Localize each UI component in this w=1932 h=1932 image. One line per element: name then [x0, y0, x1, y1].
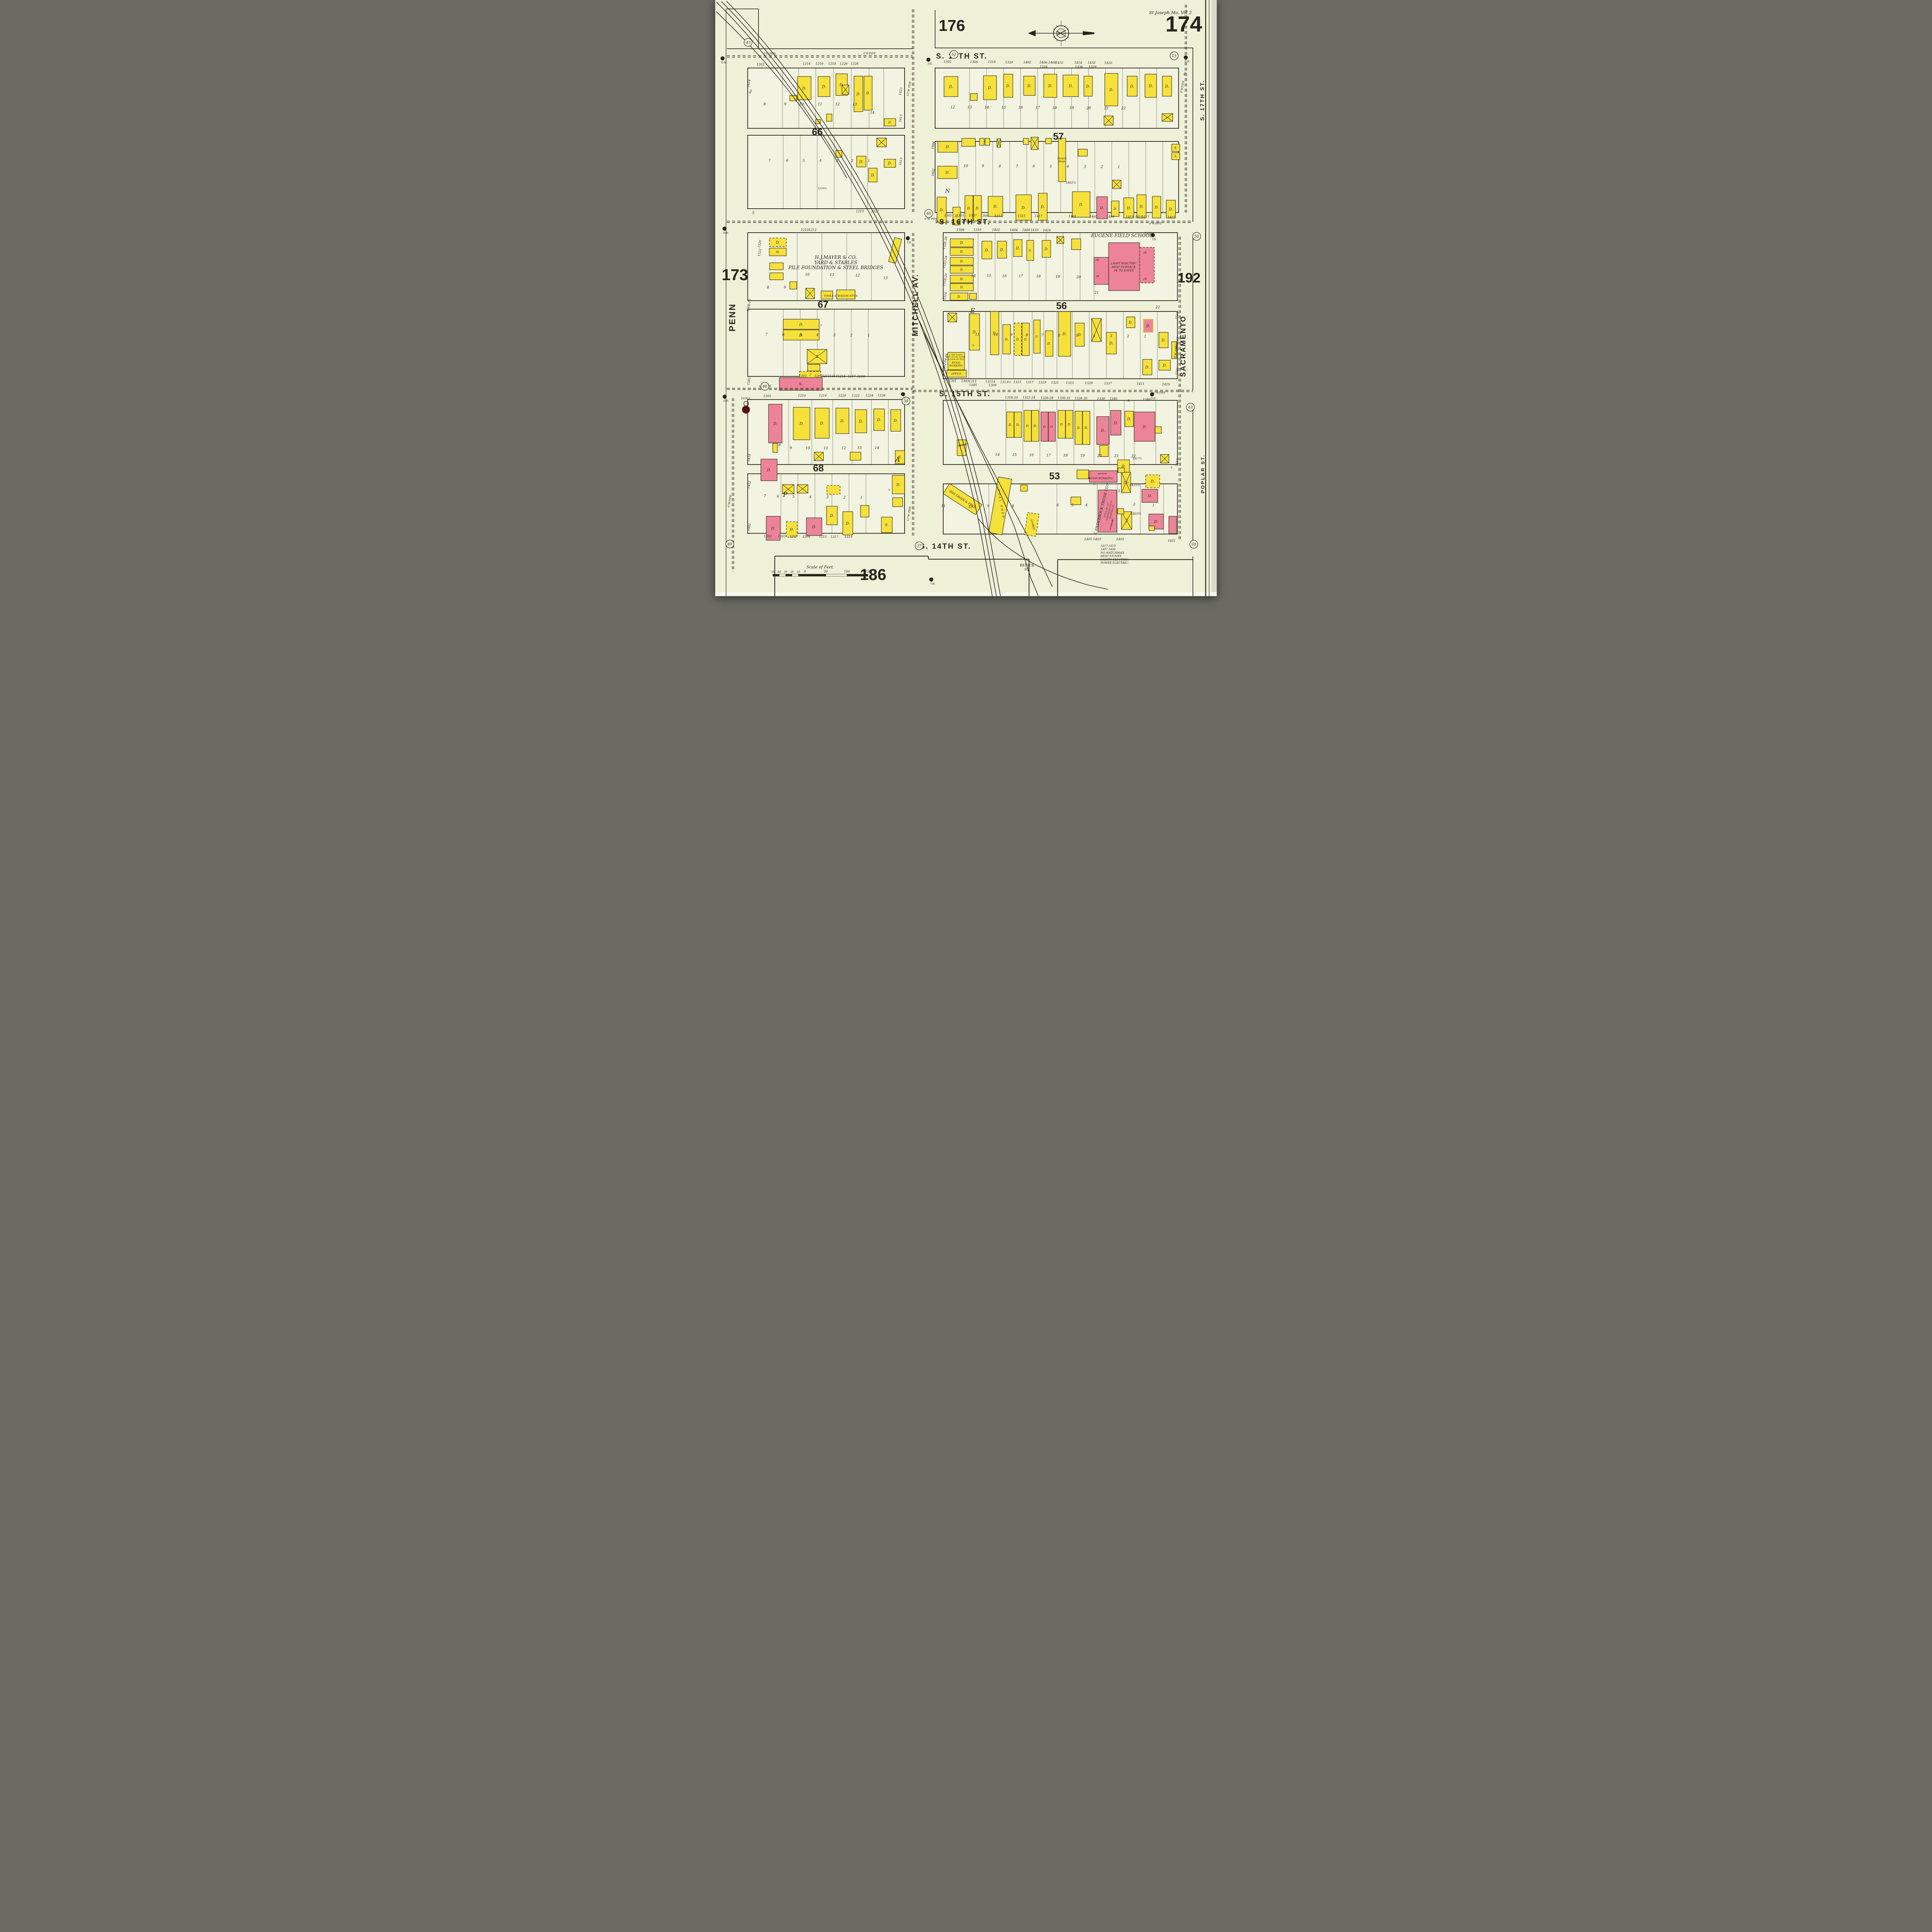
- building-use-label: D.: [1026, 424, 1029, 428]
- circled-number-value: 52: [952, 53, 956, 57]
- building: D.: [1111, 410, 1121, 435]
- lot-number: 17: [1019, 274, 1023, 278]
- building: D.: [938, 166, 957, 179]
- lot-number: 12: [835, 102, 840, 106]
- building-use-label: D.: [1139, 204, 1143, 209]
- address-label: 1219: [844, 535, 852, 539]
- building-use-label: D.: [960, 250, 964, 253]
- building-footprint: [770, 273, 783, 280]
- building: [980, 138, 984, 145]
- lot-number: 18: [1053, 106, 1057, 110]
- map-note: POWER ELECTRIC:: [1100, 561, 1129, 565]
- building-use-label: D.: [985, 248, 989, 252]
- map-note: HEAT STOVES: [1100, 554, 1121, 558]
- building-use-label: 2: [815, 355, 818, 359]
- address-label: 1346: [1143, 398, 1150, 401]
- address-label: 1302: [944, 60, 951, 63]
- lot-number: 12: [855, 273, 860, 277]
- street-edge-line: [928, 556, 929, 559]
- map-note: S.: [1171, 466, 1173, 469]
- address-label: 1212: [808, 228, 816, 232]
- building: [806, 288, 815, 299]
- hydrant-dot-icon: [926, 58, 930, 61]
- building: [797, 485, 808, 493]
- building-use-label: D.: [877, 418, 881, 422]
- address-label: 1210: [798, 394, 806, 398]
- lot-number: 17: [1036, 106, 1040, 110]
- building: D.: [950, 239, 973, 247]
- lot-number: 4: [1093, 334, 1095, 338]
- building: [842, 85, 849, 94]
- building: D.: [1003, 74, 1013, 97]
- building-use-label: D.: [959, 241, 964, 245]
- sanborn-fire-insurance-map: D.D.D.D.D.D.D.D.D.D.D.D.D.D.D.D.D.D.D.D.…: [715, 0, 1217, 596]
- map-note: Carp'tr: [1057, 157, 1067, 160]
- lot-number: 20: [1097, 454, 1102, 458]
- building: [1046, 138, 1051, 144]
- scale-bar-segment: [847, 574, 868, 577]
- building: [1160, 454, 1169, 463]
- lot-number: 1: [1118, 165, 1120, 169]
- building-use-label: D.: [1084, 426, 1088, 430]
- building: D.: [1072, 192, 1090, 217]
- building: D.: [982, 241, 992, 259]
- map-note: WORKING: [949, 364, 963, 367]
- map-note: 34' TO EAVES: [1114, 269, 1134, 272]
- lot-number: 20: [1076, 275, 1081, 279]
- building-use-label: D.: [1154, 205, 1158, 209]
- building-use-label: D.: [1142, 425, 1146, 429]
- building: D.: [1097, 197, 1107, 219]
- address-label: 1311A: [985, 380, 995, 384]
- building-use-label: D.: [776, 240, 780, 245]
- lot-number: 3: [833, 333, 836, 337]
- page-edge-shading: [1211, 0, 1217, 596]
- map-note: 1216½: [818, 187, 827, 190]
- address-label: 1207: [814, 374, 822, 378]
- building: D.: [1003, 325, 1010, 354]
- circled-number-value: 50: [1194, 235, 1199, 239]
- building-use-label: D.: [1126, 206, 1131, 210]
- building-use-label: D.: [1008, 423, 1012, 427]
- lot-number: 8: [778, 443, 781, 447]
- building-footprint: [969, 293, 976, 299]
- address-label: 1408: [1022, 228, 1030, 232]
- map-note: YARD & STABLES: [815, 260, 857, 265]
- building-use-label: D.: [1048, 84, 1052, 88]
- lot-number: 20: [1086, 106, 1091, 110]
- fire-alarm-label: F.A.: [743, 409, 748, 411]
- building: D.: [1162, 76, 1172, 96]
- lot-number: 6: [1057, 503, 1059, 508]
- building: D.: [1124, 198, 1134, 218]
- building-use-label: D.: [1150, 480, 1155, 484]
- address-label: 1404: [1010, 228, 1017, 232]
- address-label: 1421: [1167, 216, 1175, 219]
- lot-number: 8: [999, 164, 1001, 168]
- building: [1117, 509, 1124, 514]
- address-label: 1418: [1088, 61, 1095, 65]
- lot-number: 4: [816, 333, 819, 337]
- lot-number: 18: [1063, 453, 1068, 457]
- building-use-label: D.: [1154, 520, 1158, 524]
- building-footprint: [861, 505, 869, 517]
- building: 2: [807, 349, 827, 364]
- address-label: 1217: [848, 375, 856, 378]
- lot-number: 5: [793, 495, 795, 499]
- building-use-label: D.: [888, 121, 892, 124]
- lot-number: 14: [985, 105, 989, 110]
- hydrant-dot-icon: [1150, 392, 1154, 396]
- lot-number: 1: [868, 159, 870, 163]
- building-use-label: D.: [896, 483, 900, 487]
- map-note: S.: [972, 344, 975, 347]
- lot-number: 22: [1121, 106, 1126, 111]
- building-use-label: D.: [1100, 206, 1104, 210]
- building: D.: [884, 159, 896, 167]
- building-use-label: D.: [799, 322, 803, 327]
- address-label: 1307: [969, 214, 977, 217]
- map-note: 2B.: [1143, 278, 1147, 281]
- building-footprint: [1149, 526, 1155, 531]
- building-use-label: D.: [1060, 423, 1063, 426]
- building: D.: [950, 275, 973, 283]
- map-note: EUGENE FIELD SCHOOL: [1091, 233, 1153, 238]
- block-number: 67: [818, 299, 828, 310]
- lot-number: 13: [852, 102, 857, 107]
- building: D.: [1027, 240, 1034, 260]
- scale-bar-tick: 30: [784, 570, 787, 573]
- address-label: 1413: [1126, 215, 1133, 219]
- address-label: 1226: [878, 394, 885, 397]
- address-label: 1315: [1014, 381, 1021, 384]
- building-use-label: D.: [1146, 324, 1150, 328]
- address-label: 1318: [988, 60, 996, 64]
- building: D.: [793, 407, 810, 440]
- address-label: 1311: [994, 214, 1002, 218]
- lot-number: 14: [870, 111, 875, 115]
- hydrant-dot-icon: [723, 226, 726, 230]
- address-label: 1324: [1040, 65, 1048, 69]
- address-label: 1326-28: [1041, 396, 1053, 400]
- address-label: 1218: [828, 62, 836, 66]
- building-footprint: [770, 263, 783, 270]
- circled-number: 37: [915, 542, 923, 550]
- building-use-label: D.: [1043, 425, 1046, 429]
- address-label: 1410: [1031, 228, 1038, 232]
- building-footprint: [962, 138, 975, 146]
- building-use-label: D.: [1016, 423, 1020, 427]
- address-label: 1402: [992, 228, 1000, 232]
- building-use-label: D.: [1109, 88, 1113, 92]
- map-note: 2B.: [1095, 259, 1099, 262]
- building-footprint: [1078, 149, 1087, 156]
- building-use-label: D.: [1113, 421, 1117, 425]
- building-use-label: D.: [888, 162, 892, 166]
- address-label: 1420: [1104, 61, 1112, 65]
- lot-number: 11: [824, 446, 828, 451]
- building-footprint: [1023, 138, 1029, 145]
- building: [1155, 427, 1162, 433]
- building-use-label: D.: [960, 268, 964, 271]
- building: S.: [1172, 144, 1180, 151]
- map-note: Shop.: [1058, 160, 1066, 163]
- address-label: 1405: [1089, 215, 1097, 218]
- map-note: WOOD: [952, 361, 960, 364]
- building-use-label: D.: [1016, 338, 1020, 341]
- building-use-label: D.: [1027, 84, 1031, 88]
- building-use-label: D.: [1033, 424, 1037, 428]
- lot-number: 10: [806, 446, 810, 451]
- building: [1071, 239, 1081, 250]
- map-note: OFFICE: [951, 372, 962, 376]
- map-note: A.: [1093, 483, 1095, 486]
- adjacent-sheet-number: 173: [722, 266, 748, 284]
- building-use-label: D.: [789, 528, 794, 532]
- map-note: PILE FOUNDATION & STEEL BRIDGES: [788, 265, 883, 270]
- building-use-label: D.: [1079, 202, 1083, 207]
- hydrant-label: D.H.: [721, 61, 727, 64]
- scale-bar-segment: [792, 574, 799, 577]
- block-number: 66: [812, 127, 823, 138]
- circled-number: 21: [1170, 52, 1178, 60]
- building: [808, 364, 820, 371]
- map-note: MOTOR.: [1097, 473, 1107, 475]
- building-use-label: D.: [1047, 342, 1051, 345]
- volume-script-title: St Joseph Mo. Vol 2: [1149, 10, 1192, 15]
- building: D.: [1048, 412, 1055, 441]
- circled-number: 40: [726, 540, 734, 548]
- address-label: 1224: [866, 394, 873, 398]
- address-label: 1202: [763, 394, 771, 398]
- water-pipe-label: 6"W.PIPE: [764, 52, 776, 55]
- utility-marker: F.A.: [742, 406, 750, 413]
- map-note: ENG. & GAL GASOL: [946, 356, 966, 359]
- address-label: 1215: [856, 210, 864, 213]
- address-label: 1226: [840, 62, 847, 66]
- lot-number: 9: [987, 504, 990, 509]
- building: D.: [1024, 410, 1031, 441]
- building-use-label: D.: [949, 85, 953, 89]
- lot-number: 7: [768, 158, 770, 163]
- lot-number: 6: [1033, 164, 1035, 168]
- lot-number: 9: [784, 286, 786, 290]
- building-use-label: D.: [960, 259, 964, 263]
- lot-number: 10: [799, 102, 804, 106]
- page-bottom-edge: [715, 592, 1217, 596]
- building: D.: [869, 168, 877, 182]
- building-footprint: [1118, 468, 1124, 473]
- building: D.: [950, 248, 973, 255]
- building-use-label: D.: [993, 204, 997, 209]
- map-note: 1417½: [1133, 457, 1142, 460]
- hydrant-label: T.H.: [927, 63, 932, 66]
- building-footprint: [773, 443, 777, 452]
- building-footprint: [893, 498, 903, 507]
- building-use-label: 1: [1023, 487, 1025, 490]
- lot-number: 7: [1041, 333, 1044, 338]
- circled-number: 52: [950, 51, 958, 59]
- building-footprint: [790, 282, 797, 289]
- building: 2: [1121, 512, 1132, 529]
- scale-bar-segment: [786, 574, 792, 577]
- scale-bar-segment: [773, 574, 779, 577]
- building-use-label: D.: [859, 160, 863, 164]
- water-pipe-label: 6"W.PIPE: [1149, 222, 1162, 225]
- address-label: 1337: [1104, 382, 1112, 385]
- hydrant-dot-icon: [901, 392, 905, 396]
- building: D.: [950, 284, 973, 291]
- street-name-label: S. 15TH ST.: [939, 390, 990, 398]
- lot-number: 7: [764, 494, 766, 498]
- map-note: TOOLS & WAGON ST'GE.: [824, 294, 859, 298]
- water-pipe-label: 6"W.PIPE: [863, 52, 876, 55]
- building-use-label: D.: [1113, 207, 1117, 211]
- map-note: 1411½: [1129, 483, 1140, 487]
- lot-number: 2: [1133, 502, 1136, 507]
- map-note: LIGHTS ELECTRIC:: [1100, 558, 1129, 561]
- building-footprint: [1077, 470, 1088, 479]
- building-use-label: D.: [1040, 205, 1044, 209]
- address-label: 1217: [830, 535, 838, 539]
- building-use-label: D.: [821, 85, 826, 89]
- building: S.: [881, 517, 892, 532]
- lot-number: 14: [875, 446, 879, 450]
- address-label: 1214: [819, 394, 827, 398]
- building: D.: [1063, 75, 1078, 97]
- building: D.: [769, 404, 782, 443]
- address-label: 1321: [1051, 381, 1059, 384]
- address-label: 1227: [871, 210, 879, 213]
- lot-number: 13: [968, 105, 972, 109]
- building-footprint: [827, 485, 840, 494]
- building: [1023, 138, 1029, 145]
- lot-number: 16: [1002, 274, 1007, 278]
- building: D.: [950, 293, 968, 300]
- address-label: 1219: [857, 375, 865, 378]
- building-use-label: D.: [1147, 494, 1151, 498]
- building: D.: [761, 459, 777, 481]
- building: D.: [783, 319, 819, 329]
- address-label: 1207: [789, 535, 798, 538]
- building: [770, 263, 783, 270]
- building-use-label: D.: [799, 422, 803, 426]
- lot-number: 1: [861, 496, 863, 500]
- hydrant-label: D.H.: [1184, 60, 1190, 63]
- building: [1118, 468, 1124, 473]
- building: D.: [1144, 320, 1153, 332]
- building-use-label: D.: [776, 250, 779, 254]
- hydrant-label: D.H.: [723, 400, 729, 403]
- lot-number: 7: [765, 333, 767, 337]
- building-use-label: D.: [1109, 341, 1113, 345]
- building-use-label: D.: [1130, 84, 1134, 88]
- lot-number: 21: [1114, 454, 1119, 458]
- hydrant-dot-icon: [723, 395, 726, 398]
- hydrant-dot-icon: [906, 236, 910, 240]
- circled-number-value: 40: [727, 542, 732, 546]
- building: D.: [1145, 74, 1156, 97]
- scale-bar-segment: [798, 574, 805, 577]
- lot-number: 11: [941, 504, 946, 509]
- address-label: 1315: [1017, 214, 1025, 218]
- map-note: 2B: [1095, 275, 1099, 278]
- building-footprint: [970, 94, 977, 100]
- circled-number-value: 30: [1192, 543, 1196, 547]
- building: [1104, 116, 1113, 125]
- circled-number-value: 48: [762, 384, 767, 389]
- address-label: 1417: [1141, 215, 1149, 219]
- address-label: 1414: [1074, 61, 1082, 65]
- lot-number: 12: [842, 446, 846, 451]
- building-use-label: D.: [1062, 332, 1066, 336]
- building: D.: [1058, 410, 1065, 438]
- building: [1077, 470, 1088, 479]
- hydrant-label: D.H.: [723, 231, 729, 235]
- building-footprint: [850, 452, 861, 460]
- building-use-label: D.: [1127, 417, 1131, 421]
- building-footprint: [1169, 516, 1177, 534]
- circled-number-value: 37: [917, 544, 922, 548]
- address-label: 1317: [1034, 214, 1043, 218]
- building: [773, 443, 777, 452]
- building: D.: [884, 119, 896, 126]
- building-use-label: S.: [799, 382, 803, 386]
- building-use-label: 2: [809, 373, 811, 376]
- lot-number: 11: [818, 102, 822, 106]
- building: D.: [1044, 74, 1057, 97]
- address-label: 1306: [970, 60, 978, 64]
- building-use-label: D.: [1021, 206, 1026, 210]
- building-use-label: D.: [1067, 423, 1071, 426]
- scale-bar-tick: 50: [771, 570, 775, 573]
- lot-number: 9: [784, 102, 786, 106]
- hydrant-dot-icon: [721, 56, 724, 60]
- building-use-label: D.: [1028, 249, 1032, 252]
- lot-number: 10: [994, 333, 998, 337]
- building-footprint: [1071, 239, 1081, 250]
- hydrant-dot-icon: [1184, 55, 1188, 59]
- address-label: 1202: [757, 63, 764, 66]
- address-label: 1411: [1136, 382, 1144, 386]
- building: D.: [1032, 410, 1039, 441]
- address-label: 1301: [949, 379, 956, 383]
- building: D.: [944, 77, 958, 97]
- building: [770, 273, 783, 280]
- building-use-label: D.: [771, 527, 775, 531]
- building-use-label: D.: [1168, 207, 1173, 211]
- address-label: 1210: [801, 228, 808, 232]
- hydrant-label: T.H.: [1152, 238, 1157, 241]
- building: D.: [1159, 360, 1170, 370]
- map-note: NO WATCHMAN: [1100, 551, 1124, 554]
- address-label: 1214: [803, 62, 810, 66]
- building: D.: [1126, 317, 1135, 328]
- address-label: 1410: [1055, 61, 1063, 65]
- building: D.: [874, 409, 884, 430]
- building-use-label: D.: [893, 419, 898, 423]
- lot-number: 8: [1012, 504, 1014, 509]
- address-label: 1338: [1097, 397, 1105, 401]
- address-label: 1308: [956, 228, 964, 232]
- map-note: H.J.MAYER & CO.: [815, 255, 857, 260]
- building-use-label: D.: [812, 525, 816, 529]
- lot-number: 6: [1058, 333, 1061, 338]
- building: D.: [1014, 412, 1022, 437]
- map-note: 1407 1409: [1100, 548, 1116, 551]
- building: D.: [1127, 76, 1137, 96]
- building-use-label: D.: [802, 86, 806, 90]
